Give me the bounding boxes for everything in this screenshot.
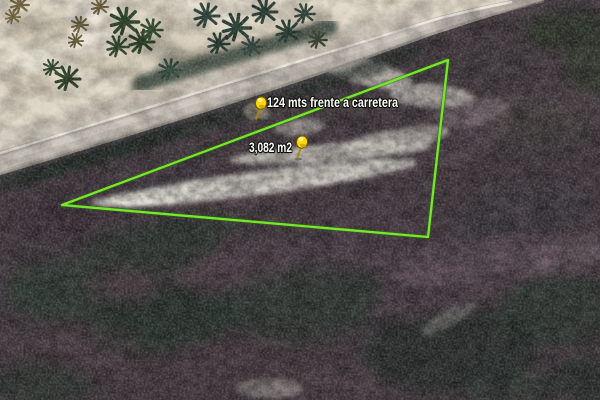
label-frontage[interactable]: 124 mts frente a carretera [267,95,398,110]
noise-overlay [0,0,600,400]
satellite-map-view[interactable]: 124 mts frente a carretera 3,082 m2 [0,0,600,400]
map-canvas: 124 mts frente a carretera 3,082 m2 [0,0,600,400]
label-area[interactable]: 3,082 m2 [249,140,292,155]
